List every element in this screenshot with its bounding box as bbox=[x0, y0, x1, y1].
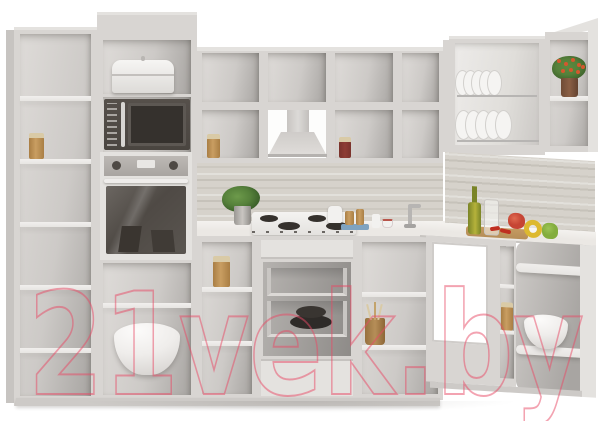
faucet-spout bbox=[408, 204, 421, 208]
shelf bbox=[202, 341, 252, 346]
wall-box-cavity bbox=[335, 53, 393, 102]
cooktop-burner bbox=[260, 215, 278, 222]
oven-knob bbox=[112, 161, 121, 170]
oven-glass-chair-reflection bbox=[151, 230, 175, 252]
spice-jar-lid bbox=[207, 134, 220, 139]
spice-jar-lid bbox=[29, 133, 44, 138]
faucet-riser bbox=[408, 206, 412, 226]
shelf bbox=[20, 348, 91, 353]
wall-box-cavity bbox=[402, 53, 439, 102]
spice-jar bbox=[29, 137, 44, 159]
wall-box-cavity bbox=[202, 53, 259, 102]
red-spice-jar-lid bbox=[339, 137, 351, 142]
oven-handle bbox=[104, 179, 188, 183]
green-bell-pepper bbox=[542, 222, 558, 239]
metabox-drawer bbox=[267, 268, 347, 296]
shelf bbox=[500, 284, 514, 289]
tall-shelf-unit-side-panel bbox=[6, 30, 14, 403]
wooden-utensil bbox=[374, 302, 376, 320]
shelf bbox=[20, 285, 91, 290]
rack-rail bbox=[457, 95, 537, 97]
shelf bbox=[20, 222, 91, 227]
small-bottle bbox=[372, 214, 380, 228]
microwave-door-window bbox=[128, 103, 186, 146]
cooktop-burner bbox=[308, 215, 326, 222]
red-bell-pepper bbox=[508, 212, 525, 229]
red-spice-jar bbox=[339, 141, 351, 158]
flower-blossoms bbox=[557, 59, 561, 63]
faucet-base bbox=[404, 224, 416, 228]
yellow-pepper-ring bbox=[524, 219, 542, 238]
utensil-crock bbox=[365, 318, 385, 345]
corner-unit-side-panel bbox=[588, 26, 598, 152]
microwave-handle bbox=[121, 102, 125, 147]
condiment-bottle bbox=[356, 209, 364, 225]
shelf bbox=[500, 330, 514, 335]
right-base-run bbox=[420, 221, 598, 414]
plate-rack-upper bbox=[462, 70, 534, 96]
storage-jar bbox=[213, 261, 230, 287]
bread-bin-lid-seam bbox=[112, 74, 174, 76]
shelf bbox=[202, 287, 252, 292]
shelf bbox=[103, 303, 191, 308]
serving-tray bbox=[341, 224, 369, 230]
spice-jar bbox=[207, 138, 220, 158]
tall-shelf-unit-cavity bbox=[20, 34, 91, 396]
condiment-bottle bbox=[345, 211, 354, 225]
kitchen-product-photo: 21vek.by bbox=[0, 0, 600, 421]
range-hood-chimney bbox=[287, 110, 309, 133]
range-hood-lip bbox=[268, 154, 327, 157]
plate bbox=[487, 70, 502, 96]
cooktop-burner bbox=[278, 222, 300, 230]
bread-bin bbox=[112, 60, 174, 93]
drawer-front bbox=[261, 359, 353, 396]
end-unit-side-panel bbox=[580, 245, 596, 398]
cup bbox=[382, 219, 393, 228]
oven-knob bbox=[169, 161, 178, 170]
plate-rack-lower bbox=[462, 110, 538, 140]
storage-jar bbox=[501, 306, 513, 331]
olive-oil-bottle bbox=[468, 202, 481, 235]
drawer-front bbox=[261, 240, 353, 259]
storage-jar-lid bbox=[501, 302, 513, 308]
storage-jar-lid bbox=[213, 256, 230, 262]
sink-cabinet-open-back bbox=[432, 242, 488, 345]
shelf bbox=[20, 96, 91, 101]
milk-jug bbox=[328, 206, 342, 223]
wall-box-cavity bbox=[402, 110, 439, 158]
oven-glass-chair-reflection bbox=[118, 226, 142, 252]
oven-door-glass bbox=[106, 186, 186, 254]
oven-display bbox=[137, 160, 155, 168]
plate bbox=[495, 110, 512, 140]
rack-rail bbox=[457, 140, 539, 142]
flower-pot bbox=[561, 78, 578, 97]
microwave-control-panel bbox=[107, 103, 117, 146]
herb-plant-pot bbox=[234, 206, 251, 225]
black-cookware-lid bbox=[296, 306, 326, 318]
shelf bbox=[20, 159, 91, 164]
wall-box-cavity bbox=[268, 53, 326, 102]
cooktop-knob-row bbox=[252, 231, 356, 233]
floor-shadow bbox=[10, 401, 590, 417]
bread-bin-knob bbox=[141, 56, 145, 61]
